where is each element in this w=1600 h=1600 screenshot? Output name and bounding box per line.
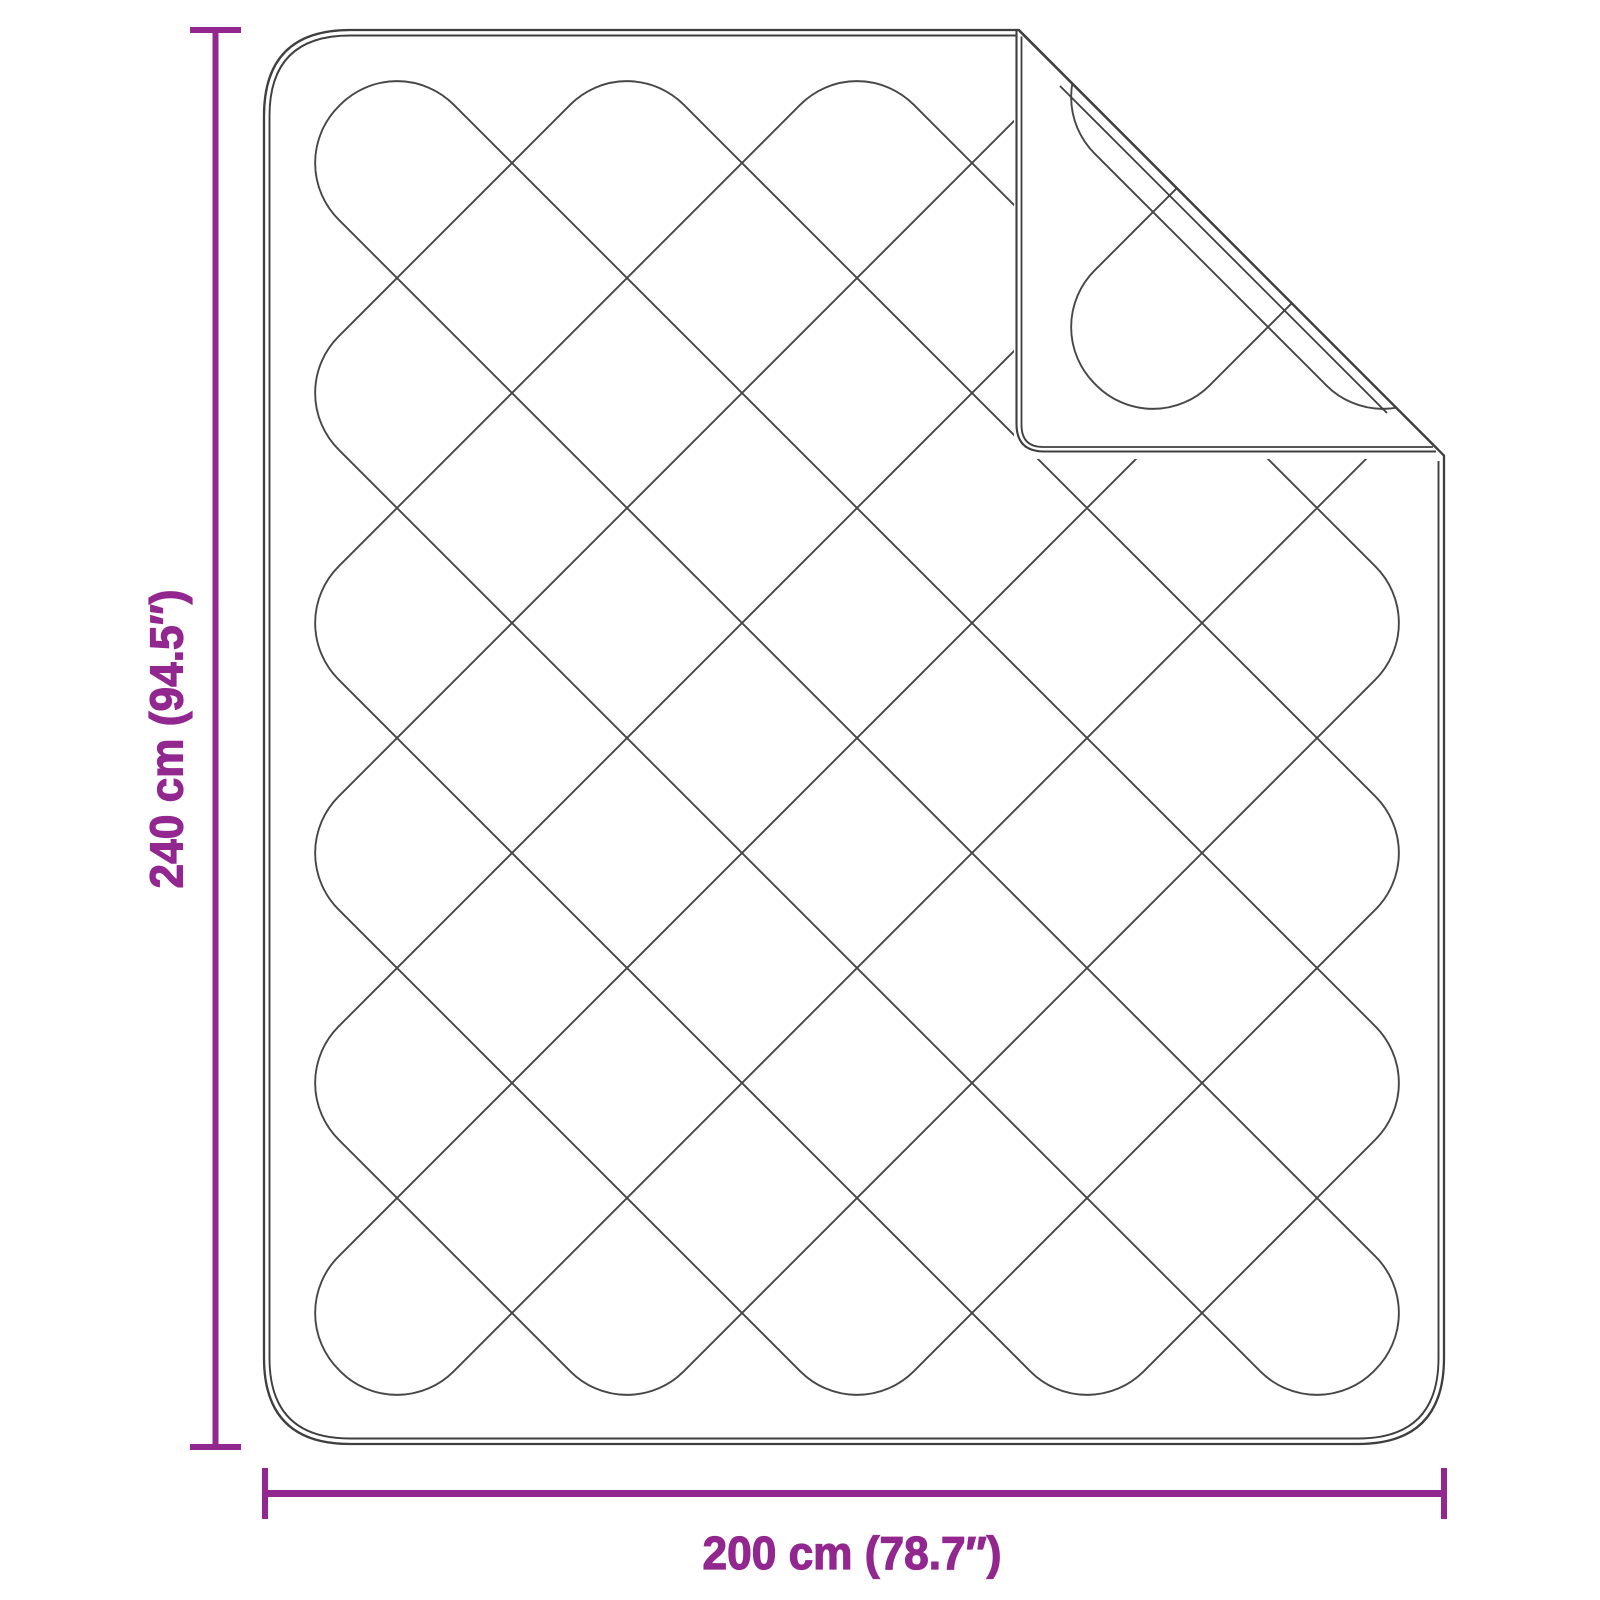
svg-text:240 cm (94.5″): 240 cm (94.5″) [141,590,193,889]
svg-text:200 cm (78.7″): 200 cm (78.7″) [703,1527,1002,1579]
